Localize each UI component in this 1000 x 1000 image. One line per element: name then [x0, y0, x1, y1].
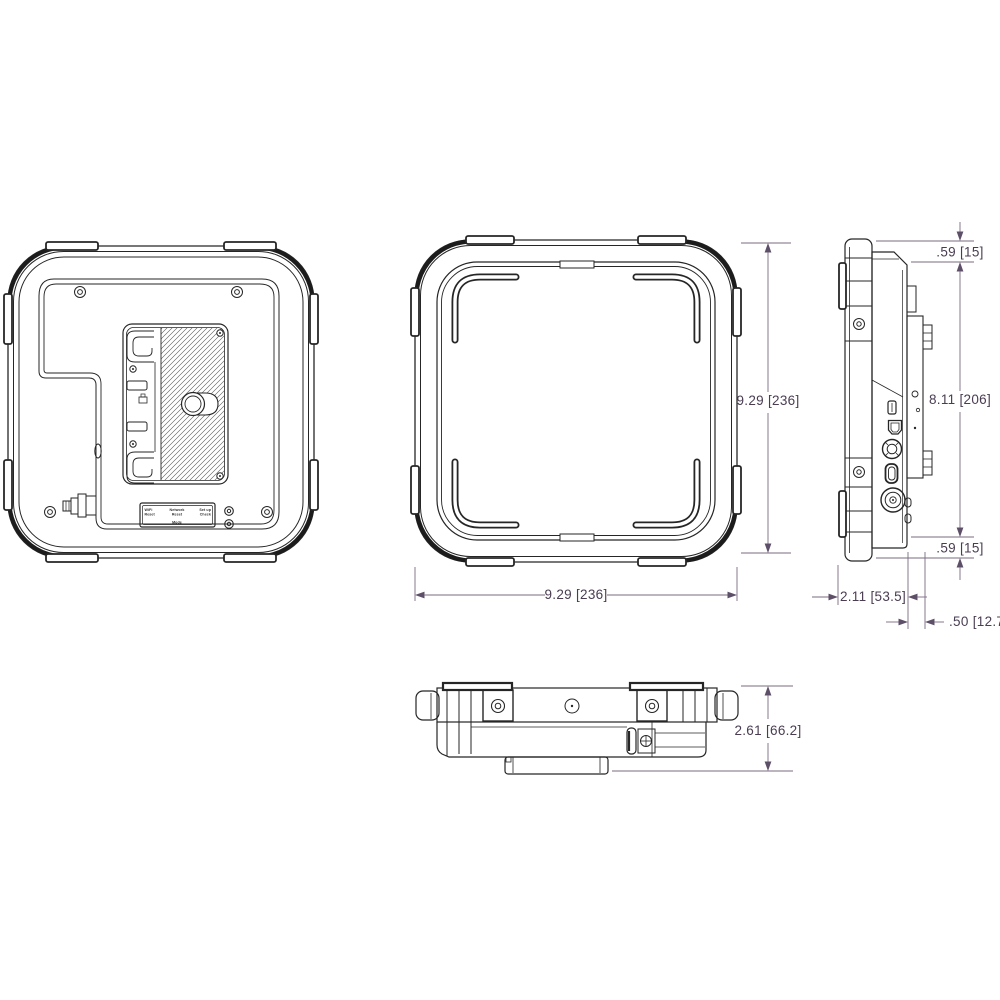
dim-front-width-label: 9.29 [236]	[544, 587, 607, 602]
battery-release-latch	[627, 728, 655, 754]
technical-drawing-page: WiFi Reset Network Reset Set up Check Mo…	[0, 0, 1000, 1000]
inner-frame-top-tab	[560, 261, 594, 268]
bottom-mid-body	[437, 722, 706, 757]
battery-plate	[123, 324, 228, 484]
power-switch	[888, 401, 896, 414]
battery-cleat-bottom	[127, 452, 154, 483]
dimension-drawing: WiFi Reset Network Reset Set up Check Mo…	[0, 0, 1000, 1000]
bottom-mount-boss	[505, 757, 608, 774]
rear-view: WiFi Reset Network Reset Set up Check Mo…	[4, 242, 318, 562]
rear-housing-outline	[39, 279, 279, 529]
dim-bottom-thickness-label: 2.61 [66.2]	[734, 723, 801, 738]
front-corner-bumpers	[416, 241, 735, 560]
dim-side-depth-label: 2.11 [53.5]	[840, 589, 906, 604]
mini-usb-port	[889, 421, 902, 435]
dim-plate-depth-label: .50 [12.7]	[949, 614, 1000, 629]
label-col2-line2: Reset	[172, 512, 183, 516]
bottom-bumper-tab-right	[630, 683, 703, 690]
front-outer-frame	[415, 240, 737, 562]
rear-label-plate: WiFi Reset Network Reset Set up Check Mo…	[140, 503, 215, 527]
label-col3-line2: Check	[200, 512, 211, 516]
side-battery-bracket	[907, 286, 932, 478]
side-bump-1	[905, 498, 911, 507]
dim-front-width: 9.29 [236]	[415, 567, 737, 602]
rear-bnc-connector	[63, 494, 96, 517]
bottom-view	[416, 683, 738, 774]
power-connector	[883, 440, 902, 459]
keyhole-slot	[182, 393, 219, 416]
rear-indicator-leds	[225, 507, 234, 529]
front-view	[411, 236, 741, 566]
dim-front-height-label: 9.29 [236]	[736, 393, 799, 408]
label-footer: Mode	[172, 520, 182, 524]
side-view	[839, 239, 932, 561]
dim-side-depth: 2.11 [53.5]	[812, 552, 927, 629]
rear-screws	[45, 287, 273, 518]
label-col3-line1: Set up	[199, 508, 211, 512]
front-corner-slots	[455, 277, 697, 525]
inner-frame-bottom-tab	[560, 534, 594, 541]
front-inner-frame	[437, 261, 715, 541]
label-col1-line2: Reset	[145, 512, 156, 516]
battery-guide-tabs	[127, 381, 147, 431]
bottom-bumper-tab-left	[443, 683, 512, 690]
label-col2-line1: Network	[170, 508, 185, 512]
dim-side-bottom-label: .59 [15]	[936, 541, 983, 556]
battery-cleat-top	[127, 331, 154, 362]
bnc-port	[881, 488, 905, 512]
dim-front-height: 9.29 [236]	[736, 243, 799, 553]
side-bump-2	[905, 514, 911, 523]
bottom-top-bar	[416, 683, 738, 722]
label-col1-line1: WiFi	[145, 508, 153, 512]
side-body	[872, 252, 907, 548]
hdmi-port	[886, 464, 898, 483]
dim-side-top-label: .59 [15]	[936, 245, 983, 260]
dim-side-mount-label: 8.11 [206]	[929, 392, 991, 407]
side-rail	[845, 239, 872, 561]
